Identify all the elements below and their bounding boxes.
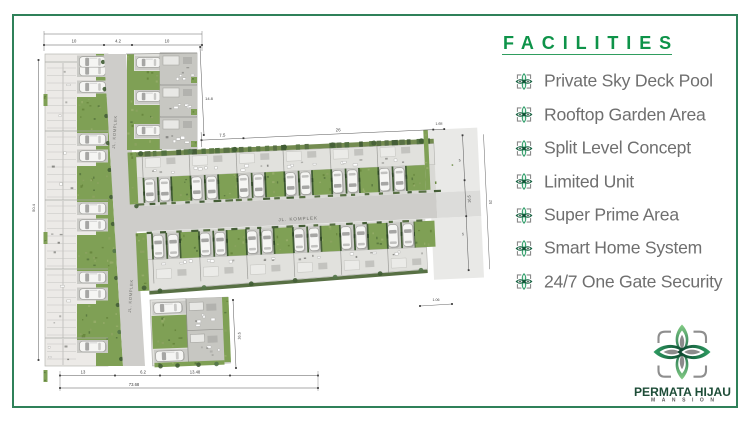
svg-text:16.5: 16.5 [237,332,241,340]
svg-text:6.2: 6.2 [140,370,146,375]
svg-text:10: 10 [165,39,170,44]
svg-text:5: 5 [459,158,461,162]
svg-text:13.48: 13.48 [190,370,201,375]
svg-text:7.5: 7.5 [219,133,226,138]
svg-text:26: 26 [336,127,342,132]
svg-text:73.68: 73.68 [129,382,140,387]
svg-text:14.8: 14.8 [205,96,214,101]
svg-text:50.4: 50.4 [31,203,36,212]
svg-text:1.06: 1.06 [433,298,440,302]
svg-text:10: 10 [72,39,77,44]
svg-text:16.5: 16.5 [467,195,471,203]
svg-text:5: 5 [462,232,464,236]
svg-text:1.68: 1.68 [435,122,442,126]
svg-text:52: 52 [488,200,492,204]
svg-text:4.2: 4.2 [115,39,121,44]
svg-text:13: 13 [81,370,86,375]
